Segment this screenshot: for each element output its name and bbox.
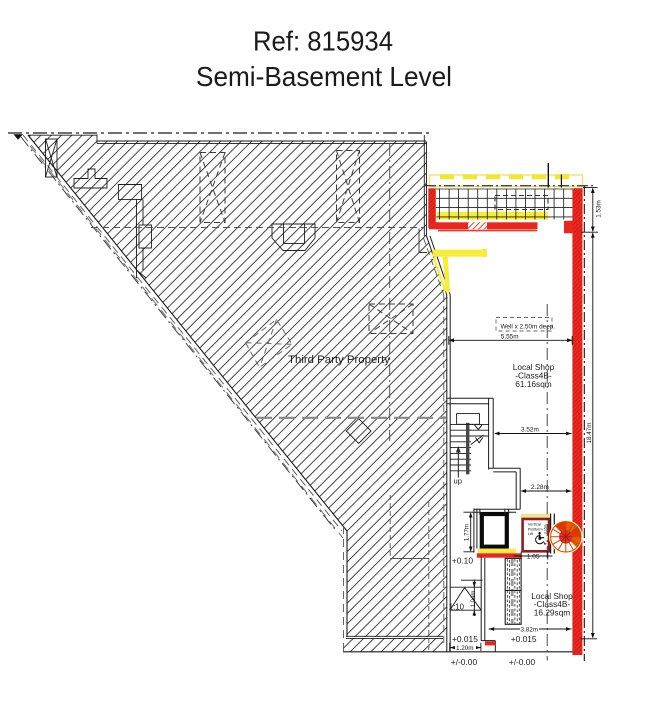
svg-text:+0.015: +0.015	[511, 634, 537, 644]
svg-text:5.55m: 5.55m	[501, 333, 519, 340]
svg-text:3.82m: 3.82m	[521, 627, 539, 634]
svg-text:Lift: Lift	[528, 531, 534, 536]
svg-text:Third Party Property: Third Party Property	[288, 354, 390, 366]
svg-text:Semi-Basement Level: Semi-Basement Level	[196, 61, 452, 92]
svg-text:1:10: 1:10	[449, 603, 465, 612]
svg-text:16.29sqm: 16.29sqm	[534, 607, 571, 617]
svg-text:1.20m: 1.20m	[456, 645, 474, 652]
svg-text:Ref: 815934: Ref: 815934	[253, 25, 393, 56]
svg-text:+0.10: +0.10	[452, 556, 474, 566]
svg-text:3.52m: 3.52m	[521, 427, 539, 434]
svg-text:+/-0.00: +/-0.00	[509, 657, 536, 667]
svg-text:61.16sqm: 61.16sqm	[515, 379, 552, 389]
svg-text:+/-0.00: +/-0.00	[451, 657, 478, 667]
svg-text:1.77m: 1.77m	[463, 524, 470, 541]
svg-text:1.04m: 1.04m	[471, 591, 477, 608]
svg-text:+0.015: +0.015	[452, 634, 478, 644]
svg-text:up: up	[454, 477, 462, 486]
svg-text:18.47m: 18.47m	[586, 422, 593, 443]
svg-text:1.05: 1.05	[527, 553, 540, 560]
svg-text:1.53m: 1.53m	[596, 200, 603, 218]
svg-text:2.28m: 2.28m	[531, 484, 549, 491]
